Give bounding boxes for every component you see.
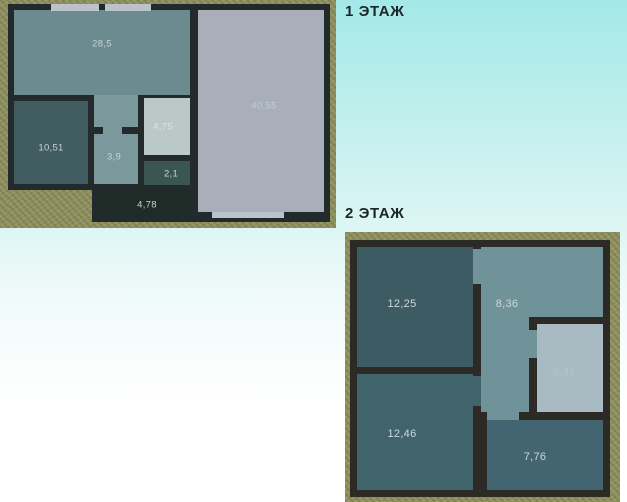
floor1-area-label-4-78: 4,78: [137, 200, 157, 211]
floor1-area-label-2-1: 2,1: [164, 169, 178, 180]
floor2-corridor-8-36-stem: [481, 317, 529, 412]
floor2-plan: 12,25 8,36 5,31 12,46 7,76: [345, 232, 620, 502]
floor1-title: 1 ЭТАЖ: [345, 3, 404, 20]
floor1-plan: 28,5 10,51 3,9 4,75 2,1 4,78 40,55: [0, 0, 336, 228]
floor1-area-label-10-51: 10,51: [38, 143, 63, 154]
floor2-area-label-12-46: 12,46: [387, 428, 416, 440]
floor2-area-label-5-31: 5,31: [553, 366, 576, 378]
floor1-door-jamb-right: [122, 127, 138, 134]
floor1-hall-3-9: [94, 95, 138, 184]
floor1-area-label-28-5: 28,5: [92, 39, 112, 50]
floor1-area-label-4-75: 4,75: [153, 122, 173, 133]
floor1-window-top-right: [105, 4, 151, 11]
floor2-door-12-46: [473, 376, 481, 406]
floor1-area-label-3-9: 3,9: [107, 152, 121, 163]
floor2-title: 2 ЭТАЖ: [345, 205, 404, 222]
floor1-ground-cutout: [8, 190, 92, 228]
floor2-door-12-25: [473, 249, 481, 284]
floor2-area-label-7-76: 7,76: [524, 451, 547, 463]
floor2-area-label-12-25: 12,25: [387, 298, 416, 310]
floor2-area-label-8-36: 8,36: [496, 298, 519, 310]
floor1-window-top-left: [51, 4, 99, 11]
floor1-room-28-5: [14, 10, 190, 95]
floor2-door-7-76: [487, 412, 519, 420]
floor1-window-bottom: [212, 212, 284, 218]
floor1-area-label-40-55: 40,55: [251, 101, 276, 112]
floor2-door-5-31: [529, 330, 537, 358]
floor1-door-jamb-left: [88, 127, 103, 134]
